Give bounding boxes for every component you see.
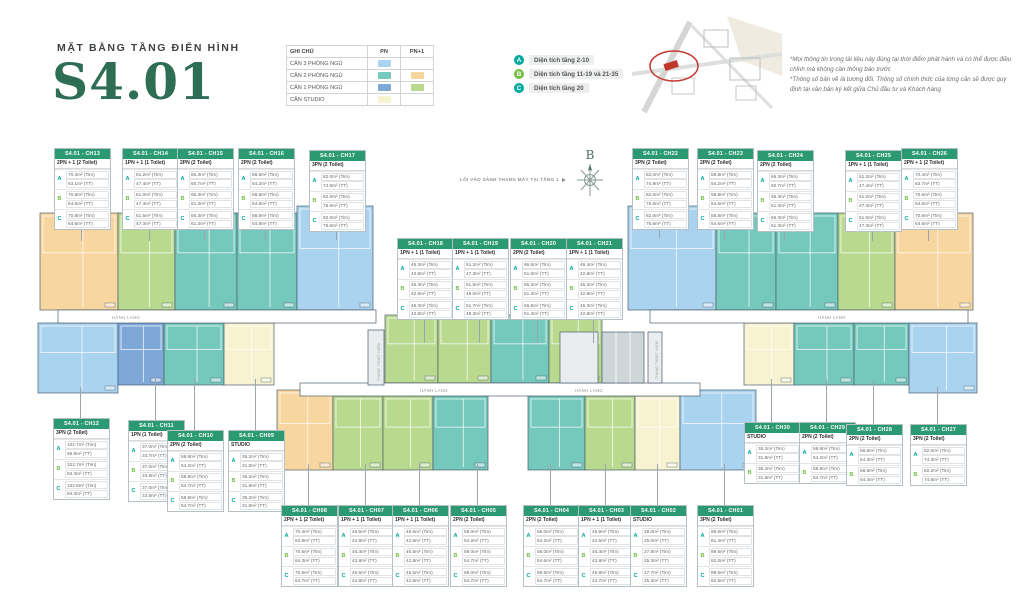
area-value: 61.0m² (TT) [522,269,565,277]
area-value: 95.8m² (TT) [65,449,108,457]
area-value: 70.6m² (Tim) [293,568,336,576]
unit-type-label: 3PN (2 Toilet) [633,159,688,169]
unit-type-label: 1PN + 1 (1 Toilet) [339,516,394,526]
floor-key-letter: A [511,260,520,279]
area-values: 66.3m² (Tim)61.3m² (TT) [767,212,813,231]
area-value: 46.3m² (Tim) [409,281,452,289]
area-value: 31.8m² (TT) [756,453,799,461]
floor-key-letter: B [567,280,576,299]
area-value: 46.3m² (Tim) [590,548,633,556]
corridor-label: HÀNH LANG [420,388,448,393]
area-value: 64.6m² (TT) [913,220,956,228]
unit-card-title: S4.01 - CH05 [451,506,506,516]
unit-card-title: S4.01 - CH20 [511,239,566,249]
area-value: 89.6m² (Tim) [709,528,752,536]
area-values: 58.8m² (Tim)54.7m² (TT) [177,492,223,511]
area-values: 51.2m² (Tim)47.3m² (TT) [462,260,508,279]
unit-card-title: S4.01 - CH28 [847,425,902,435]
area-value: 46.4m² (Tim) [578,261,621,269]
area-value: 46.3m² (Tim) [578,281,621,289]
unit-card-ch23: S4.01 - CH232PN (2 Toilet)A58.8m² (Tim)5… [697,148,754,230]
area-row: A28.0m² (Tim)25.0m² (TT) [631,526,686,546]
area-value: 94.3m² (TT) [65,490,108,498]
unit-card-ch15: S4.01 - CH152PN (2 Toilet)A66.3m² (Tim)6… [177,148,234,230]
area-values: 51.7m² (Tim)48.3m² (TT) [462,300,508,319]
area-row: A58.8m² (Tim)54.2m² (TT) [239,169,294,189]
area-value: 61.3m² (TT) [189,220,232,228]
area-value: 46.5m² (Tim) [350,568,393,576]
area-values: 58.8m² (Tim)54.2m² (TT) [177,452,223,471]
floor-key-letter: C [310,212,319,231]
leader-line [308,464,309,505]
area-values: 82.0m² (Tim)75.6m² (TT) [319,192,365,211]
area-value: 61.3m² (TT) [769,222,812,230]
area-value: 42.8m² (TT) [404,577,447,585]
unit-type-label: 2PN (2 Toilet) [451,516,506,526]
plan-unit-balcony [478,376,488,380]
area-value: 59.0m² (Tim) [462,528,505,536]
unit-card-ch16: S4.01 - CH162PN (2 Toilet)A58.8m² (Tim)5… [238,148,295,230]
floor-key-letter: A [398,260,407,279]
floor-key-letter: C [453,300,462,319]
floor-key-letter: C [633,210,642,229]
leader-line [537,320,538,343]
floor-key-letter: A [310,172,319,191]
leader-line [155,379,156,420]
unit-card-title: S4.01 - CH27 [911,425,966,435]
area-values: 58.8m² (Tim)54.3m² (TT) [856,446,902,465]
unit-card-title: S4.01 - CH07 [339,506,394,516]
area-value: 35.2m² (Tim) [240,493,283,501]
area-values: 27.7m² (Tim)25.3m² (TT) [640,567,686,586]
floor-key-letter: B [745,464,754,483]
area-values: 46.5m² (Tim)42.8m² (TT) [402,567,448,586]
leader-line [826,379,827,422]
unit-card-ch01: S4.01 - CH013PN (2 Toilet)A89.6m² (Tim)8… [697,505,754,587]
area-values: 46.3m² (Tim)42.8m² (TT) [407,280,453,299]
stair-label: THANG THOÁT HIỂM [376,343,381,381]
area-value: 63.7m² (TT) [913,179,956,187]
area-row: C82.0m² (Tim)75.6m² (TT) [633,209,688,229]
area-values: 27.8m² (Tim)25.3m² (TT) [640,547,686,566]
area-values: 82.0m² (Tim)75.6m² (TT) [642,210,688,229]
area-row: B89.6m² (Tim)82.0m² (TT) [698,546,753,566]
leader-line [593,320,594,343]
area-value: 58.8m² (Tim) [250,191,293,199]
area-value: 28.0m² (Tim) [642,528,685,536]
leader-line [255,379,256,430]
unit-card-ch24: S4.01 - CH242PN (2 Toilet)A66.3m² (Tim)6… [757,150,814,232]
unit-type-label: 3PN (2 Toilet) [698,516,753,526]
area-row: B82.0m² (Tim)75.6m² (TT) [310,191,365,211]
area-value: 58.8m² (Tim) [858,447,901,455]
area-value: 82.0m² (Tim) [922,447,965,455]
area-value: 42.8m² (TT) [404,557,447,565]
area-row: B66.3m² (Tim)61.3m² (TT) [511,279,566,299]
floor-key-letter: C [123,210,132,229]
unit-type-label: 2PN + 1 (2 Toilet) [902,159,957,169]
floor-key-letter: C [902,210,911,229]
leader-line [928,230,929,241]
plan-unit-ch28 [854,323,909,385]
area-value: 66.3m² (Tim) [189,191,232,199]
area-values: 46.3m² (Tim)42.8m² (TT) [407,300,453,319]
area-value: 54.8m² (TT) [250,220,293,228]
leader-line [149,230,150,241]
unit-type-label: 3PN (2 Toilet) [54,429,109,439]
area-value: 54.2m² (TT) [250,179,293,187]
unit-type-label: 2PN (2 Toilet) [524,516,579,526]
area-row: C35.2m² (Tim)31.8m² (TT) [229,491,284,511]
area-row: A58.8m² (Tim)54.3m² (TT) [847,445,902,465]
area-value: 51.0m² (Tim) [134,191,177,199]
area-value: 42.8m² (TT) [578,310,621,318]
area-values: 89.6m² (Tim)82.0m² (TT) [707,547,753,566]
area-row: B46.3m² (Tim)42.8m² (TT) [398,279,453,299]
area-row: A82.0m² (Tim)74.3m² (TT) [911,445,966,465]
unit-card-title: S4.01 - CH03 [579,506,634,516]
unit-card-title: S4.01 - CH23 [698,149,753,159]
unit-type-label: 3PN (2 Toilet) [310,161,365,171]
area-value: 102.7m² (Tim) [65,461,108,469]
plan-unit-balcony [896,378,906,382]
plan-unit-balcony [151,378,161,382]
unit-card-ch14: S4.01 - CH141PN + 1 (1 Toilet)A51.2m² (T… [122,148,179,230]
plan-unit-ch18 [385,315,438,383]
area-values: 45.8m² (Tim)42.7m² (TT) [588,567,634,586]
area-values: 58.8m² (Tim)54.7m² (TT) [177,472,223,491]
unit-type-label: 1PN + 1 (1 Toilet) [846,161,901,171]
leader-line [784,232,785,241]
leader-line [724,230,725,241]
unit-card-title: S4.01 - CH02 [631,506,686,516]
area-values: 102.8m² (Tim)94.3m² (TT) [63,480,109,499]
leader-line [265,230,266,241]
area-value: 51.2m² (Tim) [857,193,900,201]
area-row: C58.8m² (Tim)54.6m² (TT) [698,209,753,229]
area-value: 54.4m² (TT) [858,476,901,484]
unit-card-title: S4.01 - CH25 [846,151,901,161]
floor-key-letter: C [579,567,588,586]
area-value: 42.6m² (TT) [590,536,633,544]
area-values: 70.6m² (Tim)64.6m² (TT) [911,190,957,209]
plan-unit-balcony [420,463,430,467]
area-row: B35.2m² (Tim)31.8m² (TT) [745,463,800,483]
area-row: C89.6m² (Tim)82.5m² (TT) [698,566,753,586]
area-values: 35.2m² (Tim)31.8m² (TT) [238,472,284,491]
unit-card-title: S4.01 - CH17 [310,151,365,161]
unit-card-title: S4.01 - CH18 [398,239,453,249]
floor-key-letter: A [453,260,462,279]
area-values: 82.0m² (Tim)75.6m² (TT) [319,212,365,231]
area-row: A35.2m² (Tim)31.8m² (TT) [745,443,800,463]
area-values: 51.5m² (Tim)47.3m² (TT) [855,212,901,231]
leader-line [424,320,425,343]
area-value: 47.3m² (TT) [464,269,507,277]
area-values: 58.8m² (Tim)54.8m² (TT) [248,190,294,209]
area-values: 70.4m² (Tim)63.8m² (TT) [291,527,337,546]
area-value: 42.7m² (TT) [590,577,633,585]
area-values: 82.0m² (Tim)74.3m² (TT) [920,446,966,465]
area-value: 46.3m² (Tim) [409,261,452,269]
area-value: 47.3m² (TT) [134,200,177,208]
plan-unit-ch20 [491,315,549,383]
area-value: 46.3m² (Tim) [350,548,393,556]
area-value: 70.6m² (Tim) [913,211,956,219]
floor-key-letter: B [698,547,707,566]
floor-key-letter: C [168,492,177,511]
plan-unit-balcony [224,303,234,307]
leader-line [659,230,660,238]
floor-key-letter: A [168,452,177,471]
leader-line [605,464,606,505]
floor-plan-sheet: MẶT BẰNG TẦNG ĐIỂN HÌNH S4.01 GHI CHÚ PN… [0,0,1024,597]
area-value: 58.8m² (Tim) [709,171,752,179]
plan-unit-balcony [105,303,115,307]
area-row: B27.8m² (Tim)25.3m² (TT) [631,546,686,566]
area-value: 66.3m² (Tim) [522,281,565,289]
area-value: 75.6m² (TT) [644,220,687,228]
area-value: 58.8m² (Tim) [709,191,752,199]
area-values: 46.3m² (Tim)42.8m² (TT) [407,260,453,279]
area-value: 54.3m² (TT) [858,455,901,463]
area-values: 70.6m² (Tim)64.7m² (TT) [291,567,337,586]
area-value: 51.7m² (Tim) [464,301,507,309]
leader-line [477,464,478,505]
unit-card-ch25: S4.01 - CH251PN + 1 (1 Toilet)A51.2m² (T… [845,150,902,232]
area-value: 51.5m² (Tim) [857,213,900,221]
area-value: 75.6m² (TT) [644,200,687,208]
area-value: 51.2m² (Tim) [134,171,177,179]
area-values: 82.0m² (Tim)75.6m² (TT) [642,190,688,209]
floor-key-letter: B [310,192,319,211]
area-values: 35.2m² (Tim)31.8m² (TT) [238,492,284,511]
area-value: 61.3m² (TT) [189,200,232,208]
floor-key-letter: B [511,280,520,299]
area-row: A46.3m² (Tim)42.8m² (TT) [398,259,453,279]
area-value: 47.3m² (TT) [857,202,900,210]
leader-line [937,387,938,424]
plan-unit-ch10 [164,323,224,385]
area-value: 66.3m² (Tim) [769,193,812,201]
floor-key-letter: C [393,567,402,586]
area-values: 51.0m² (Tim)47.3m² (TT) [132,190,178,209]
area-values: 66.3m² (Tim)61.3m² (TT) [520,280,566,299]
plan-unit-balcony [105,386,115,390]
floor-key-letter: C [54,480,63,499]
area-value: 58.0m² (Tim) [535,528,578,536]
area-row: B82.2m² (Tim)74.8m² (TT) [911,465,966,485]
plan-unit-balcony [667,463,677,467]
area-value: 61.3m² (TT) [522,290,565,298]
plan-unit-balcony [960,303,970,307]
area-row: B51.5m² (Tim)48.0m² (TT) [453,279,508,299]
floor-key-letter: B [55,190,64,209]
area-row: B70.6m² (Tim)64.3m² (TT) [282,546,337,566]
area-row: A82.0m² (Tim)74.9m² (TT) [310,171,365,191]
area-values: 70.4m² (Tim)63.7m² (TT) [911,170,957,189]
area-row: B58.8m² (Tim)54.8m² (TT) [239,189,294,209]
unit-card-ch17: S4.01 - CH173PN (2 Toilet)A82.0m² (Tim)7… [309,150,366,232]
area-value: 66.6m² (Tim) [522,261,565,269]
area-row: A46.5m² (Tim)42.8m² (TT) [393,526,448,546]
floor-key-letter: A [567,260,576,279]
area-row: B66.3m² (Tim)61.3m² (TT) [178,189,233,209]
plan-unit-balcony [622,463,632,467]
floor-key-letter: A [579,527,588,546]
area-row: A58.8m² (Tim)54.2m² (TT) [168,451,223,471]
area-value: 51.5m² (Tim) [134,211,177,219]
floor-key-letter: A [911,446,920,465]
leader-line [80,387,81,418]
area-value: 61.4m² (TT) [522,310,565,318]
area-value: 64.3m² (TT) [293,557,336,565]
plan-unit-balcony [572,463,582,467]
area-value: 46.3m² (Tim) [578,301,621,309]
unit-card-ch21: S4.01 - CH211PN + 1 (1 Toilet)A46.4m² (T… [566,238,623,320]
area-row: A102.7m² (Tim)95.8m² (TT) [54,439,109,459]
floor-key-letter: B [129,462,138,481]
plan-unit-balcony [536,376,546,380]
area-value: 51.2m² (Tim) [464,261,507,269]
unit-card-ch05: S4.01 - CH052PN (2 Toilet)A59.0m² (Tim)5… [450,505,507,587]
floor-key-letter: B [698,190,707,209]
floor-key-letter: A [698,170,707,189]
area-value: 70.4m² (Tim) [66,171,109,179]
leader-line [336,232,337,240]
area-value: 54.2m² (TT) [535,536,578,544]
area-value: 54.7m² (TT) [462,577,505,585]
area-value: 35.2m² (Tim) [756,465,799,473]
area-values: 58.8m² (Tim)54.2m² (TT) [248,170,294,189]
leader-line [550,464,551,505]
floor-key-letter: B [453,280,462,299]
area-row: C59.0m² (Tim)54.7m² (TT) [451,566,506,586]
area-value: 42.8m² (TT) [409,310,452,318]
plan-unit-balcony [284,303,294,307]
floor-key-letter: B [631,547,640,566]
area-row: A59.0m² (Tim)54.2m² (TT) [451,526,506,546]
area-value: 58.8m² (Tim) [250,171,293,179]
floor-key-letter: A [902,170,911,189]
area-row: C46.5m² (Tim)42.8m² (TT) [393,566,448,586]
area-values: 35.2m² (Tim)31.8m² (TT) [238,452,284,471]
area-values: 58.0m² (Tim)54.2m² (TT) [533,527,579,546]
area-value: 54.6m² (TT) [709,220,752,228]
area-values: 51.5m² (Tim)47.3m² (TT) [132,210,178,229]
area-values: 58.0m² (Tim)54.6m² (TT) [533,547,579,566]
area-value: 74.8m² (TT) [922,476,965,484]
area-value: 82.2m² (Tim) [922,467,965,475]
plan-unit-balcony [261,378,271,382]
area-value: 47.4m² (TT) [857,181,900,189]
plan-unit-balcony [320,463,330,467]
area-value: 31.8m² (TT) [240,461,283,469]
unit-type-label: 1PN + 1 (1 Toilet) [398,249,453,259]
floor-key-letter: A [55,170,64,189]
unit-card-ch03: S4.01 - CH031PN + 1 (1 Toilet)A45.9m² (T… [578,505,635,587]
area-row: A70.4m² (Tim)63.8m² (TT) [282,526,337,546]
floor-key-letter: A [633,170,642,189]
area-value: 82.0m² (Tim) [644,171,687,179]
area-value: 35.2m² (Tim) [240,453,283,461]
area-row: A82.0m² (Tim)74.9m² (TT) [633,169,688,189]
area-value: 82.0m² (Tim) [321,193,364,201]
plan-unit-balcony [964,386,974,390]
area-value: 35.2m² (Tim) [240,473,283,481]
unit-type-label: 1PN + 1 (1 Toilet) [393,516,448,526]
plan-unit-ch12 [38,323,118,393]
floor-key-letter: C [698,210,707,229]
unit-type-label: 2PN (2 Toilet) [698,159,753,169]
floor-key-letter: B [123,190,132,209]
area-row: C46.5m² (Tim)42.8m² (TT) [339,566,394,586]
area-value: 45.9m² (Tim) [590,528,633,536]
unit-card-title: S4.01 - CH22 [633,149,688,159]
area-value: 82.0m² (Tim) [644,211,687,219]
unit-card-ch26: S4.01 - CH262PN + 1 (2 Toilet)A70.4m² (T… [901,148,958,230]
unit-card-ch08: S4.01 - CH082PN + 1 (2 Toilet)A70.4m² (T… [281,505,338,587]
unit-card-title: S4.01 - CH09 [229,431,284,441]
area-row: A66.3m² (Tim)60.7m² (TT) [178,169,233,189]
area-value: 51.5m² (Tim) [464,281,507,289]
floor-key-letter: A [524,527,533,546]
plan-unit-balcony [425,376,435,380]
area-value: 58.5m² (Tim) [535,568,578,576]
area-values: 46.3m² (Tim)42.8m² (TT) [348,547,394,566]
area-values: 70.8m² (Tim)64.6m² (TT) [64,210,110,229]
plan-unit-balcony [882,303,892,307]
unit-card-title: S4.01 - CH24 [758,151,813,161]
floor-key-letter: B [282,547,291,566]
area-value: 64.6m² (TT) [913,200,956,208]
corridor-label: HÀNH LANG [818,315,846,320]
area-values: 28.0m² (Tim)25.0m² (TT) [640,527,686,546]
plan-unit-balcony [825,303,835,307]
floor-key-letter: B [800,464,809,483]
unit-card-ch18: S4.01 - CH181PN + 1 (1 Toilet)A46.3m² (T… [397,238,454,320]
floor-key-letter: A [758,172,767,191]
leader-line [365,464,366,505]
area-value: 31.8m² (TT) [240,482,283,490]
unit-type-label: STUDIO [631,516,686,526]
floor-key-letter: A [339,527,348,546]
leader-line [872,232,873,241]
floor-key-letter: C [55,210,64,229]
area-value: 46.5m² (Tim) [404,548,447,556]
floor-key-letter: C [631,567,640,586]
area-value: 27.8m² (Tim) [642,548,685,556]
area-value: 48.0m² (TT) [464,290,507,298]
area-value: 47.3m² (TT) [134,220,177,228]
leader-line [479,320,480,343]
area-value: 64.7m² (TT) [293,577,336,585]
floor-key-letter: A [123,170,132,189]
area-value: 42.8m² (TT) [590,557,633,565]
floor-key-letter: A [178,170,187,189]
unit-type-label: 2PN (2 Toilet) [511,249,566,259]
area-value: 42.8m² (TT) [409,290,452,298]
area-row: C51.5m² (Tim)47.3m² (TT) [846,211,901,231]
area-values: 89.6m² (Tim)81.4m² (TT) [707,527,753,546]
area-value: 70.8m² (Tim) [66,211,109,219]
leader-line [657,464,658,505]
unit-card-ch22: S4.01 - CH223PN (2 Toilet)A82.0m² (Tim)7… [632,148,689,230]
floor-key-letter: B [902,190,911,209]
unit-card-ch19: S4.01 - CH191PN + 1 (1 Toilet)A51.2m² (T… [452,238,509,320]
area-value: 42.8m² (TT) [350,577,393,585]
area-value: 74.9m² (TT) [644,179,687,187]
